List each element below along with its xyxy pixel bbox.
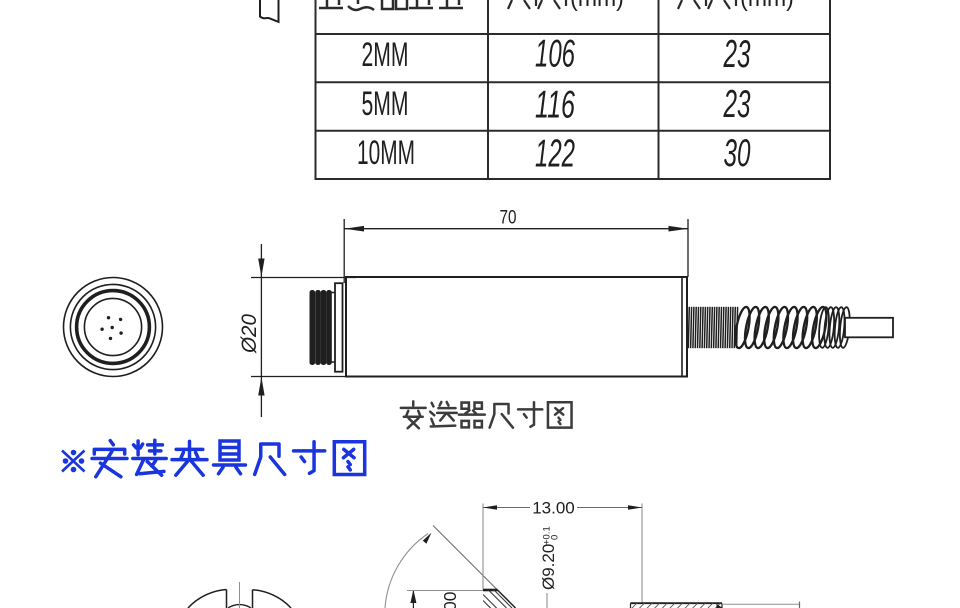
svg-text:30: 30 bbox=[724, 132, 751, 175]
svg-text:(mm): (mm) bbox=[570, 0, 624, 11]
svg-text:Ø20: Ø20 bbox=[238, 314, 261, 354]
svg-text:(mm): (mm) bbox=[740, 0, 794, 11]
svg-text:106: 106 bbox=[535, 33, 575, 76]
svg-text:10MM: 10MM bbox=[357, 134, 415, 172]
svg-text:13.00: 13.00 bbox=[532, 499, 575, 518]
svg-text:23: 23 bbox=[723, 83, 751, 126]
svg-text:0: 0 bbox=[550, 535, 561, 540]
svg-text:122: 122 bbox=[535, 133, 575, 176]
svg-text:70: 70 bbox=[500, 208, 517, 229]
svg-text:116: 116 bbox=[535, 84, 575, 127]
svg-text:5MM: 5MM bbox=[362, 85, 409, 123]
svg-text:00: 00 bbox=[440, 591, 460, 608]
svg-text:23: 23 bbox=[723, 33, 751, 76]
svg-text:2MM: 2MM bbox=[362, 36, 409, 74]
svg-text:Ø9.20: Ø9.20 bbox=[539, 544, 558, 590]
